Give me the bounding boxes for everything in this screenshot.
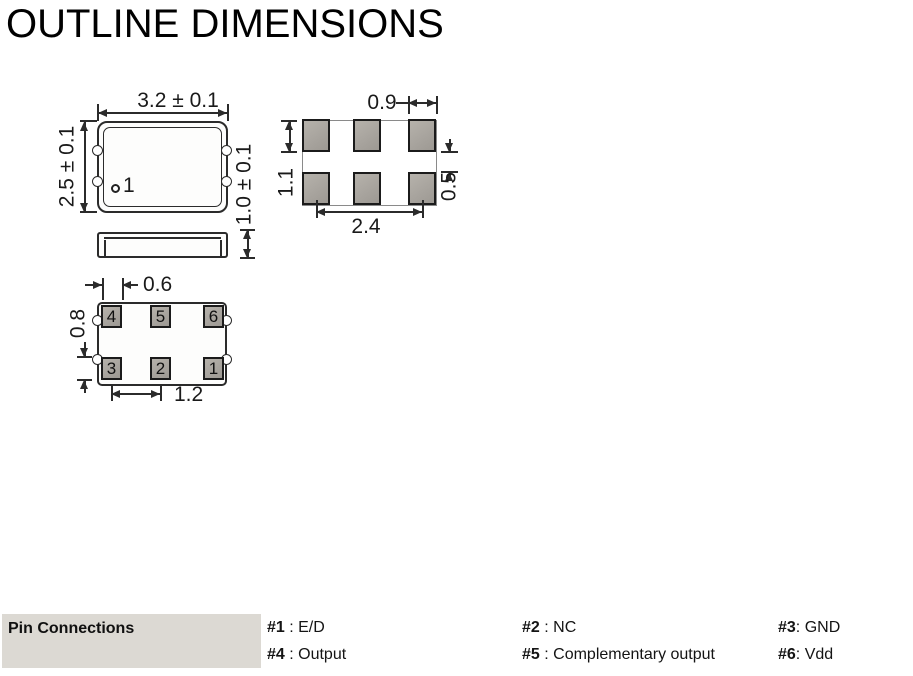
pin-function: : GND bbox=[796, 619, 840, 636]
pin-function: : E/D bbox=[285, 619, 325, 636]
pin-ref: #3 bbox=[778, 619, 796, 636]
pin-function: : Vdd bbox=[796, 646, 833, 663]
pin-function: : Output bbox=[285, 646, 346, 663]
pin-connections-label: Pin Connections bbox=[8, 620, 134, 638]
pin-function: : NC bbox=[540, 619, 576, 636]
pin-ref: #1 bbox=[267, 619, 285, 636]
pin-ref: #5 bbox=[522, 646, 540, 663]
pin-entry-3: #3: GND bbox=[778, 619, 840, 637]
pin-ref: #2 bbox=[522, 619, 540, 636]
pin-connections-table: Pin Connections #1 : E/D #2 : NC #3: GND… bbox=[0, 0, 913, 676]
pin-ref: #4 bbox=[267, 646, 285, 663]
pin-function: : Complementary output bbox=[540, 646, 715, 663]
pin-entry-2: #2 : NC bbox=[522, 619, 576, 637]
pin-entry-4: #4 : Output bbox=[267, 646, 346, 664]
pin-ref: #6 bbox=[778, 646, 796, 663]
pin-entry-6: #6: Vdd bbox=[778, 646, 833, 664]
datasheet-page: OUTLINE DIMENSIONS 3.2 ± 0.1 1 2.5 ± 0.1… bbox=[0, 0, 913, 676]
pin-entry-1: #1 : E/D bbox=[267, 619, 325, 637]
pin-entry-5: #5 : Complementary output bbox=[522, 646, 715, 664]
